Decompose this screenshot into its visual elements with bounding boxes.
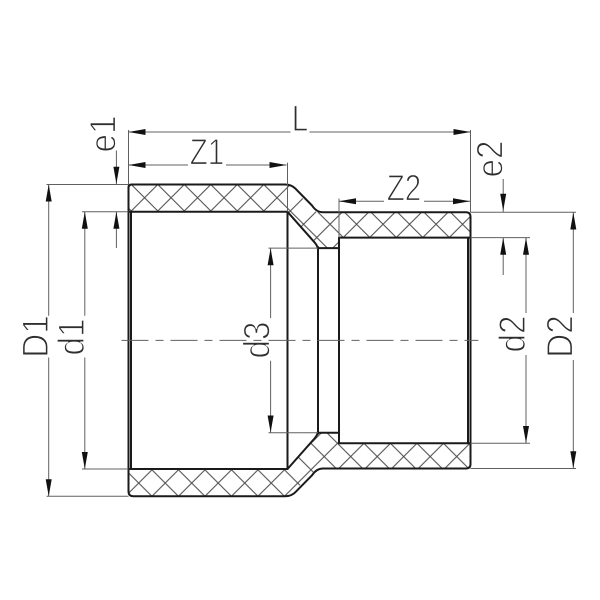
svg-text:Z2: Z2 [387,168,422,209]
svg-text:L: L [292,99,308,140]
svg-text:e2: e2 [470,140,511,177]
svg-text:d2: d2 [493,315,534,352]
svg-text:D1: D1 [15,315,56,358]
svg-text:D2: D2 [540,315,581,358]
svg-text:d1: d1 [51,318,92,355]
svg-text:e1: e1 [83,115,124,152]
svg-text:d3: d3 [237,321,278,358]
svg-text:Z1: Z1 [190,132,225,173]
